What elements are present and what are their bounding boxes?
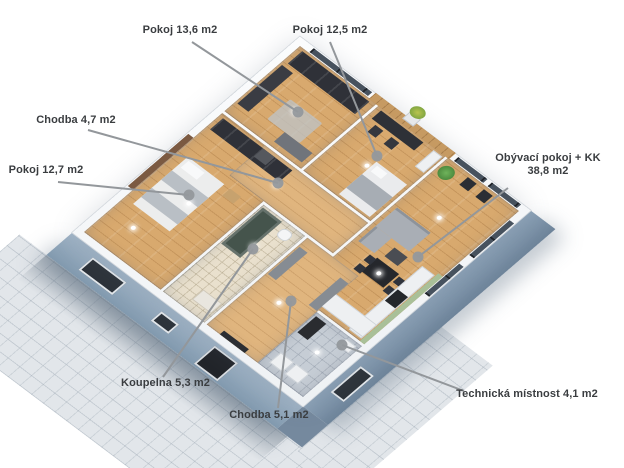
room-label-text: Chodba 4,7 m2 bbox=[36, 114, 116, 127]
room-label-chodba-5-1: Chodba 5,1 m2 bbox=[228, 409, 310, 422]
floorplan-scene: Pokoj 13,6 m2Pokoj 12,5 m2Chodba 4,7 m2P… bbox=[0, 0, 624, 468]
room-label-pokoj-12-7: Pokoj 12,7 m2 bbox=[6, 164, 86, 177]
room-label-text: Pokoj 13,6 m2 bbox=[140, 24, 220, 37]
room-label-text: Koupelna 5,3 m2 bbox=[118, 377, 213, 390]
room-label-text: Chodba 5,1 m2 bbox=[228, 409, 310, 422]
room-label-text: Obývací pokoj + KK bbox=[486, 152, 610, 165]
room-label-chodba-4-7: Chodba 4,7 m2 bbox=[36, 114, 116, 127]
room-label-text: Technická místnost 4,1 m2 bbox=[452, 388, 602, 401]
room-label-pokoj-13-6: Pokoj 13,6 m2 bbox=[140, 24, 220, 37]
room-label-koupelna: Koupelna 5,3 m2 bbox=[118, 377, 213, 390]
room-label-obyvaci-pokoj-kk: Obývací pokoj + KK38,8 m2 bbox=[486, 152, 610, 178]
room-label-text: Pokoj 12,5 m2 bbox=[290, 24, 370, 37]
room-label-text: Pokoj 12,7 m2 bbox=[6, 164, 86, 177]
room-label-pokoj-12-5: Pokoj 12,5 m2 bbox=[290, 24, 370, 37]
room-labels-layer: Pokoj 13,6 m2Pokoj 12,5 m2Chodba 4,7 m2P… bbox=[0, 0, 624, 468]
room-label-technicka-mistnost: Technická místnost 4,1 m2 bbox=[452, 388, 602, 401]
room-label-area: 38,8 m2 bbox=[486, 165, 610, 178]
